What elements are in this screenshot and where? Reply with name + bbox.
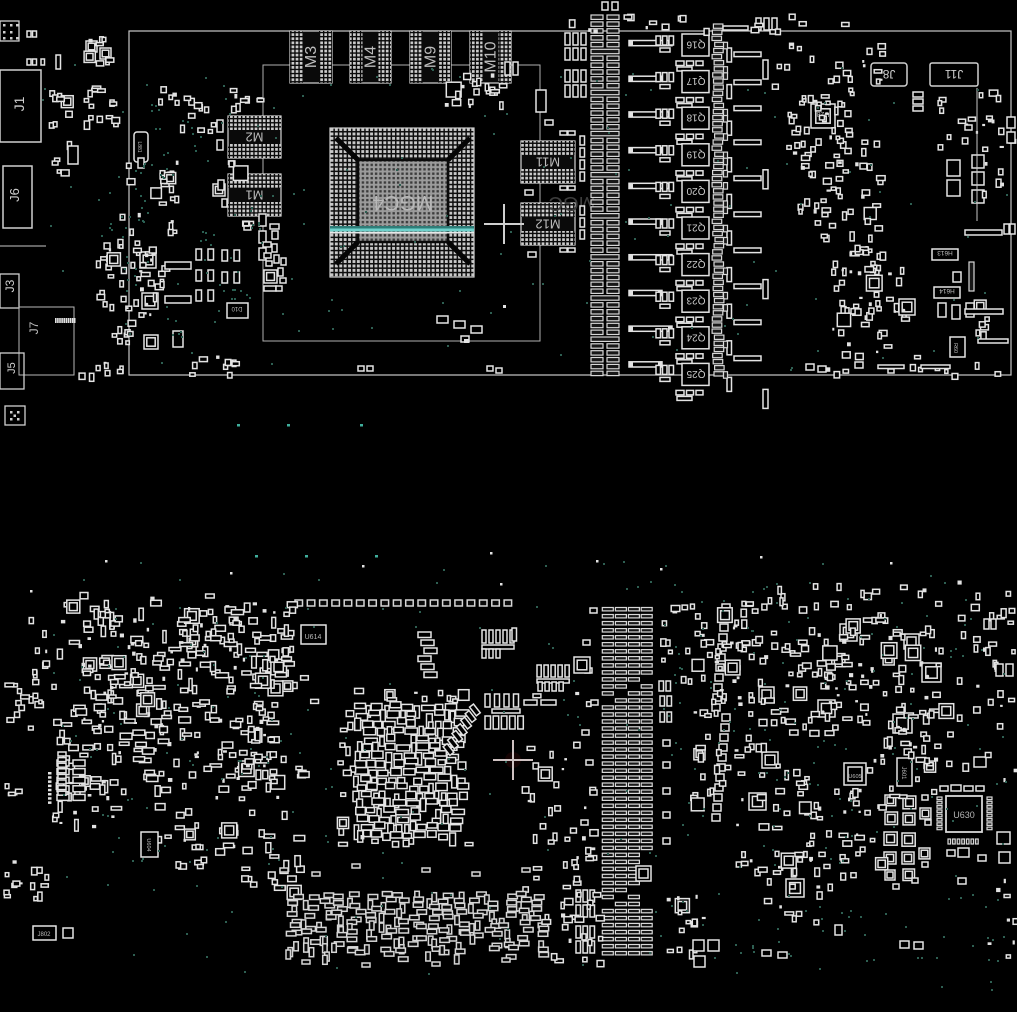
svg-text:M4: M4: [363, 46, 380, 68]
svg-text:H613: H613: [937, 249, 953, 256]
svg-text:J802: J802: [37, 932, 51, 938]
svg-text:M10: M10: [483, 41, 500, 72]
svg-text:J5: J5: [6, 362, 18, 374]
svg-text:Q19: Q19: [686, 148, 705, 159]
svg-text:MGC4: MGC4: [372, 191, 433, 214]
svg-text:Q21: Q21: [686, 222, 705, 233]
svg-text:J7: J7: [27, 321, 41, 334]
svg-text:M11: M11: [536, 155, 560, 170]
svg-text:J11: J11: [944, 67, 963, 81]
svg-text:H614: H614: [939, 287, 955, 294]
svg-text:U605: U605: [848, 774, 861, 780]
svg-text:Q20: Q20: [686, 185, 705, 196]
svg-text:Q24: Q24: [686, 331, 705, 342]
svg-text:D10: D10: [231, 305, 243, 311]
svg-text:Q17: Q17: [686, 75, 705, 86]
svg-text:Q22: Q22: [686, 258, 705, 269]
svg-text:U614: U614: [305, 634, 322, 641]
svg-text:J601: J601: [900, 766, 906, 780]
svg-text:M9: M9: [423, 46, 440, 68]
svg-text:L881: L881: [136, 141, 142, 152]
svg-text:J1: J1: [11, 96, 27, 111]
svg-text:R60: R60: [952, 343, 958, 353]
svg-text:J6: J6: [7, 188, 22, 202]
svg-text:J8: J8: [882, 67, 895, 81]
svg-text:M3: M3: [303, 46, 320, 68]
svg-text:Q16: Q16: [686, 39, 705, 50]
svg-text:M12: M12: [535, 217, 560, 232]
svg-text:Q18: Q18: [686, 112, 705, 123]
svg-text:U630: U630: [953, 810, 975, 820]
svg-text:U604: U604: [145, 838, 151, 851]
svg-text:M2: M2: [245, 130, 263, 145]
svg-text:Q25: Q25: [686, 368, 705, 379]
svg-text:Q23: Q23: [686, 295, 705, 306]
svg-text:J3: J3: [3, 279, 17, 292]
svg-text:MGC: MGC: [549, 192, 596, 214]
